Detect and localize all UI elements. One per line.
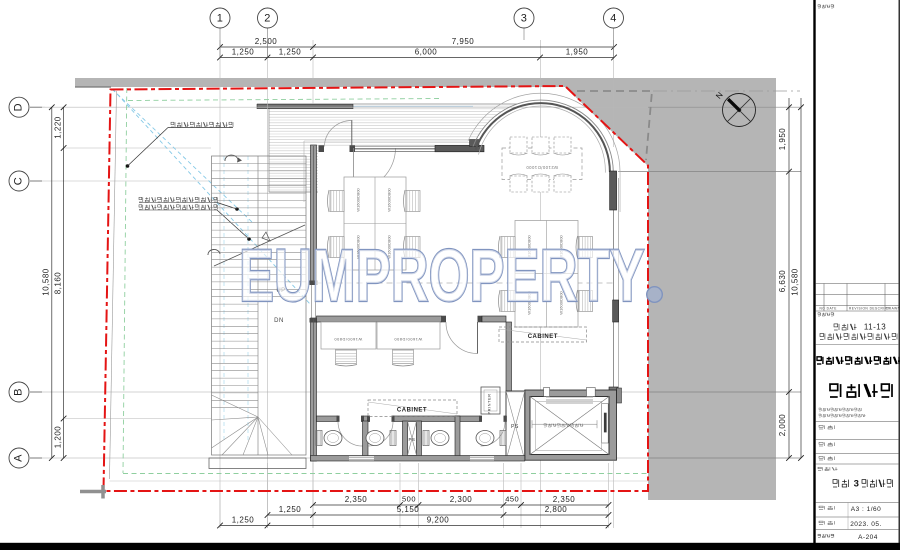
svg-text:PS: PS: [408, 437, 415, 442]
svg-text:C: C: [13, 177, 25, 185]
svg-text:CABINET: CABINET: [397, 408, 427, 414]
svg-text:W1600/D800: W1600/D800: [334, 337, 363, 342]
svg-text:2,000: 2,000: [778, 414, 787, 437]
svg-text:1,950: 1,950: [778, 128, 787, 151]
svg-text:6,630: 6,630: [778, 270, 787, 293]
svg-text:450: 450: [505, 495, 519, 504]
svg-text:DN: DN: [274, 318, 284, 324]
svg-text:4: 4: [610, 13, 617, 25]
svg-text:REVISION DESCRIPT: REVISION DESCRIPT: [849, 307, 890, 311]
svg-text:W1600/D800: W1600/D800: [394, 337, 423, 342]
svg-text:2,800: 2,800: [545, 505, 568, 514]
svg-text:3: 3: [854, 479, 860, 490]
svg-text:EUMPROPERTY: EUMPROPERTY: [239, 234, 645, 317]
svg-text:9,200: 9,200: [427, 516, 450, 525]
svg-text:1,250: 1,250: [279, 48, 302, 57]
svg-text:A-204: A-204: [858, 534, 878, 541]
svg-text:8,160: 8,160: [54, 272, 63, 295]
svg-text:CABINET: CABINET: [528, 334, 558, 340]
svg-text:2,350: 2,350: [553, 495, 576, 504]
svg-text:2,350: 2,350: [345, 495, 368, 504]
svg-text:3: 3: [521, 13, 528, 25]
svg-text:7,950: 7,950: [452, 37, 475, 46]
svg-text:1,250: 1,250: [232, 48, 255, 57]
svg-text:W1600/D800: W1600/D800: [387, 188, 392, 212]
svg-text:6,000: 6,000: [415, 48, 438, 57]
svg-text:10,580: 10,580: [791, 268, 800, 296]
svg-text:500: 500: [402, 495, 416, 504]
svg-text:PRINTER: PRINTER: [487, 393, 492, 414]
svg-text:W2100/D1000: W2100/D1000: [526, 165, 558, 170]
svg-text:1,250: 1,250: [279, 505, 302, 514]
svg-text:11-13: 11-13: [864, 323, 886, 332]
svg-text:2023. 05.: 2023. 05.: [850, 521, 882, 528]
svg-text:NO DATE: NO DATE: [820, 307, 837, 311]
svg-text:W1600/D800: W1600/D800: [356, 188, 361, 212]
svg-text:B: B: [13, 388, 25, 396]
svg-text:10,580: 10,580: [42, 268, 51, 296]
svg-text:1,220: 1,220: [54, 116, 63, 139]
svg-text:D: D: [13, 103, 25, 111]
svg-text:1,950: 1,950: [566, 48, 589, 57]
svg-text:2: 2: [264, 13, 271, 25]
svg-text:2,300: 2,300: [450, 495, 473, 504]
svg-text:A3 : 1/60: A3 : 1/60: [851, 506, 882, 513]
svg-text:1,250: 1,250: [232, 516, 255, 525]
svg-text:1,200: 1,200: [54, 426, 63, 449]
svg-text:PS: PS: [511, 424, 519, 430]
svg-text:A: A: [13, 454, 25, 462]
svg-text:5,150: 5,150: [397, 505, 420, 514]
svg-text:2,500: 2,500: [255, 37, 278, 46]
svg-text:DRAWN: DRAWN: [886, 307, 900, 311]
svg-text:1: 1: [217, 13, 224, 25]
